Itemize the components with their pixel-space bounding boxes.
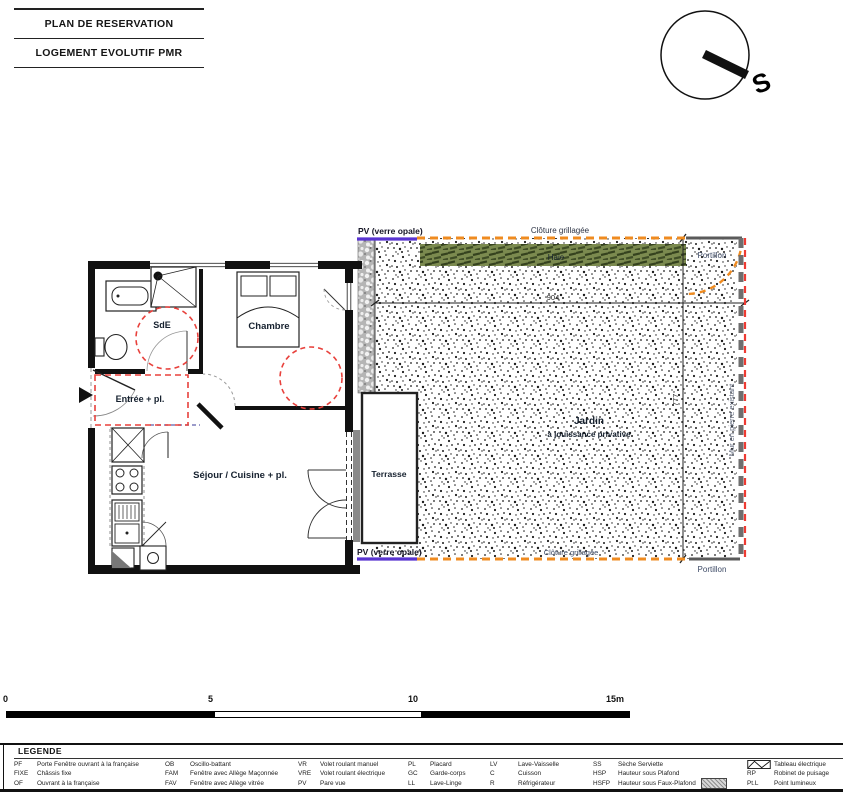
legend-value: Placard: [430, 760, 452, 770]
washing-machine: [140, 546, 166, 570]
legend-value: Hauteur sous Plafond: [618, 769, 679, 779]
toilet: [95, 338, 104, 356]
legend-key: LL: [408, 779, 430, 789]
legend-item: FIXEChâssis fixe: [14, 769, 139, 779]
legend-value: Sèche Serviette: [618, 760, 663, 770]
legend-value: Fenêtre avec Allège vitrée: [190, 779, 264, 789]
pare-vue-bottom-label: PV (verre opale): [357, 547, 422, 557]
scale-seg-3: [422, 712, 629, 717]
legend-key: Pt.L: [747, 779, 774, 789]
legend-key: OB: [165, 760, 190, 770]
room-label-sde: SdE: [153, 320, 171, 330]
scale-tick-10: 10: [408, 694, 418, 704]
legend-key: R: [490, 779, 518, 789]
legend-item: VREVolet roulant électrique: [298, 769, 385, 779]
scale-seg-2: [214, 712, 423, 717]
legend-col-3: VRVolet roulant manuel VREVolet roulant …: [298, 760, 385, 789]
garden-label: Jardin: [574, 416, 604, 427]
scale-tick-0: 0: [3, 694, 8, 704]
fence-bottom-label: Clôture grillagée: [544, 548, 599, 557]
legend-key: PL: [408, 760, 430, 770]
kitchen: [110, 428, 168, 570]
legend-key: GC: [408, 769, 430, 779]
legend-key: RP: [747, 769, 774, 779]
legend-col-1: PFPorte Fenêtre ouvrant à la française F…: [14, 760, 139, 789]
room-label-sejour: Séjour / Cuisine + pl.: [193, 470, 287, 481]
legend-item: VRVolet roulant manuel: [298, 760, 385, 770]
legend-key: FAM: [165, 769, 190, 779]
legend-key: PV: [298, 779, 320, 789]
legend-key: LV: [490, 760, 518, 770]
pare-vue-top-label: PV (verre opale): [358, 226, 423, 236]
legend-value: Oscillo-battant: [190, 760, 231, 770]
terrace: Terrasse: [353, 393, 417, 543]
legend-value: Garde-corps: [430, 769, 466, 779]
terrace-label: Terrasse: [371, 469, 406, 479]
legend-key: HSP: [593, 769, 618, 779]
plan-sheet: PLAN DE RESERVATION LOGEMENT EVOLUTIF PM…: [0, 0, 843, 800]
legend-key: VR: [298, 760, 320, 770]
fence-top-label: Clôture grillagée: [531, 226, 590, 235]
legend-item: PVPare vue: [298, 779, 385, 789]
legend-value: Lave-Vaisselle: [518, 760, 559, 770]
bedroom-door-swing: [203, 374, 235, 406]
gate-top-label: Portillon: [698, 251, 727, 260]
legend-item: LVLave-Vaisselle: [490, 760, 559, 770]
legend-key: SS: [593, 760, 618, 770]
legend-value: Réfrigérateur: [518, 779, 555, 789]
legend-value: Châssis fixe: [37, 769, 71, 779]
legend-col-4: PLPlacard GCGarde-corps LLLave-Linge: [408, 760, 466, 789]
legend-value: Porte Fenêtre ouvrant à la française: [37, 760, 139, 770]
gate-bottom-label: Portillon: [698, 565, 727, 574]
legend-key: PF: [14, 760, 37, 770]
roller-shutter-band: [353, 430, 360, 542]
legend-top-rule: [0, 743, 843, 745]
legend-col-7: Tableau électrique RPRobinet de puisage …: [747, 760, 829, 789]
garden-sublabel: à jouissance privative: [547, 430, 631, 439]
legend-value: Pare vue: [320, 779, 346, 789]
legend-value: Robinet de puisage: [774, 769, 829, 779]
legend-value: Hauteur sous Faux-Plafond: [618, 779, 696, 789]
dimension-depth-value: 777: [671, 394, 680, 407]
legend-item: RRéfrigérateur: [490, 779, 559, 789]
closet-door-leaf: [198, 404, 222, 428]
legend-item: FAVFenêtre avec Allège vitrée: [165, 779, 278, 789]
legend-col-5: LVLave-Vaisselle CCuisson RRéfrigérateur: [490, 760, 559, 789]
legend-item: Tableau électrique: [747, 760, 829, 770]
legend-key: HSFP: [593, 779, 618, 789]
scale-tick-15: 15m: [606, 694, 624, 704]
legend-col-6: SSSèche Serviette HSPHauteur sous Plafon…: [593, 760, 696, 789]
legend-item: OFOuvrant à la française: [14, 779, 139, 789]
legend-key: OF: [14, 779, 37, 789]
electrical-panel-icon: [747, 760, 771, 769]
legend-item: PLPlacard: [408, 760, 466, 770]
hedge-label: Haie: [548, 253, 565, 262]
room-label-entree: Entrée + pl.: [116, 394, 165, 404]
legend-value: Fenêtre avec Allège Maçonnée: [190, 769, 278, 779]
legend-item: SSSèche Serviette: [593, 760, 696, 770]
scale-tick-5: 5: [208, 694, 213, 704]
legend-item: HSFPHauteur sous Faux-Plafond: [593, 779, 696, 789]
legend-key: FIXE: [14, 769, 37, 779]
legend-value: Lave-Linge: [430, 779, 462, 789]
legend-item: GCGarde-corps: [408, 769, 466, 779]
room-label-chambre: Chambre: [248, 321, 289, 332]
dimension-width-value: 904: [547, 293, 560, 302]
legend-value: Ouvrant à la française: [37, 779, 100, 789]
stone-wall-label: Mur en pierre existant: [727, 383, 736, 456]
legend-item: OBOscillo-battant: [165, 760, 278, 770]
legend-value: Volet roulant manuel: [320, 760, 378, 770]
legend-col-2: OBOscillo-battant FAMFenêtre avec Allège…: [165, 760, 278, 789]
legend-value: Point lumineux: [774, 779, 816, 789]
legend-bottom-rule: [0, 789, 843, 792]
bed: [237, 272, 299, 347]
legend-key: VRE: [298, 769, 320, 779]
legend-item: CCuisson: [490, 769, 559, 779]
legend-value: Tableau électrique: [774, 760, 826, 770]
legend-item: FAMFenêtre avec Allège Maçonnée: [165, 769, 278, 779]
legend-value: Volet roulant électrique: [320, 769, 385, 779]
scale-seg-1: [7, 712, 214, 717]
legend-value: Cuisson: [518, 769, 541, 779]
legend-item: RPRobinet de puisage: [747, 769, 829, 779]
legend-key: C: [490, 769, 518, 779]
legend-title: LEGENDE: [18, 746, 62, 756]
legend-item: LLLave-Linge: [408, 779, 466, 789]
building: SdE Chambre Entrée + pl. Séjour / Cuisin…: [79, 261, 362, 574]
bathroom-fixtures: [95, 267, 196, 360]
legend-item: Pt.LPoint lumineux: [747, 779, 829, 789]
false-ceiling-hatch-swatch: [701, 778, 727, 789]
legend-key: FAV: [165, 779, 190, 789]
scale-bar-strip: [6, 711, 630, 718]
floor-plan: 904 777 Jardin à jouissance privative Ha…: [0, 0, 843, 800]
bay-window: [308, 432, 352, 540]
legend-item: PFPorte Fenêtre ouvrant à la française: [14, 760, 139, 770]
legend-item: HSPHauteur sous Plafond: [593, 769, 696, 779]
legend-left-rule: [3, 743, 4, 790]
